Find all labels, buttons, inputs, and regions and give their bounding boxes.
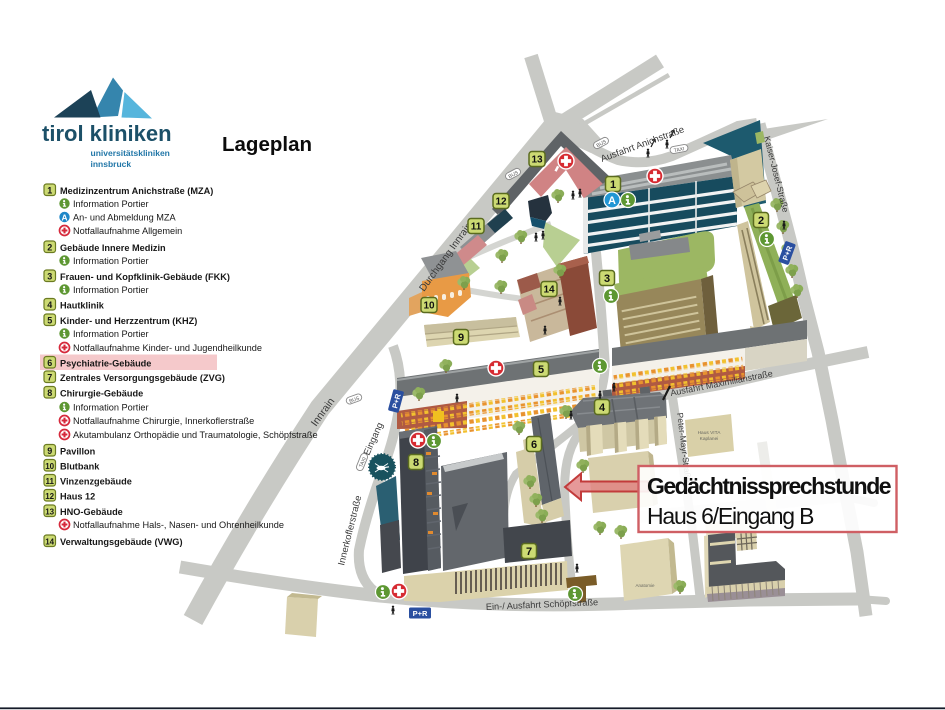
svg-text:9: 9 — [458, 332, 464, 344]
svg-text:Psychiatrie-Gebäude: Psychiatrie-Gebäude — [60, 358, 151, 368]
svg-text:9: 9 — [47, 446, 52, 456]
svg-text:5: 5 — [47, 315, 52, 325]
svg-text:Information Portier: Information Portier — [73, 256, 149, 266]
svg-text:Vinzenzgebäude: Vinzenzgebäude — [60, 476, 132, 486]
svg-text:Haus VITA: Haus VITA — [698, 430, 722, 436]
svg-text:A: A — [608, 195, 616, 207]
svg-text:Anatomie: Anatomie — [635, 583, 655, 588]
svg-text:11: 11 — [471, 222, 482, 233]
svg-text:4: 4 — [47, 300, 52, 310]
svg-text:13: 13 — [531, 155, 543, 166]
svg-text:Gebäude Innere Medizin: Gebäude Innere Medizin — [60, 243, 166, 253]
svg-text:An- und Abmeldung MZA: An- und Abmeldung MZA — [73, 213, 177, 223]
svg-text:Chirurgie-Gebäude: Chirurgie-Gebäude — [60, 388, 143, 398]
svg-text:10: 10 — [423, 301, 435, 312]
svg-text:13: 13 — [45, 507, 54, 516]
svg-text:1: 1 — [610, 179, 616, 191]
svg-text:Information Portier: Information Portier — [73, 329, 149, 339]
svg-text:4: 4 — [599, 402, 606, 414]
svg-text:Frauen- und Kopfklinik-Gebäude: Frauen- und Kopfklinik-Gebäude (FKK) — [60, 272, 230, 282]
svg-text:3: 3 — [604, 273, 610, 285]
svg-text:Akutambulanz Orthopädie und Tr: Akutambulanz Orthopädie und Traumatologi… — [73, 430, 318, 440]
svg-text:HNO-Gebäude: HNO-Gebäude — [60, 507, 123, 517]
svg-text:Notfallaufnahme Hals-, Nasen-: Notfallaufnahme Hals-, Nasen- und Ohrenh… — [73, 520, 284, 530]
svg-text:Medizinzentrum Anichstraße (MZ: Medizinzentrum Anichstraße (MZA) — [60, 186, 213, 196]
svg-text:Kinder- und Herzzentrum (KHZ): Kinder- und Herzzentrum (KHZ) — [60, 316, 197, 326]
svg-text:Gedächtnissprechstunde: Gedächtnissprechstunde — [647, 473, 891, 499]
svg-text:11: 11 — [45, 477, 54, 486]
svg-text:5: 5 — [538, 364, 544, 376]
svg-text:Notfallaufnahme Allgemein: Notfallaufnahme Allgemein — [73, 226, 182, 236]
svg-text:7: 7 — [526, 546, 532, 558]
svg-text:2: 2 — [47, 242, 52, 252]
svg-text:innsbruck: innsbruck — [91, 159, 132, 169]
svg-text:P+R: P+R — [413, 609, 428, 618]
svg-text:Verwaltungsgebäude (VWG): Verwaltungsgebäude (VWG) — [60, 537, 183, 547]
svg-text:Kaplanei: Kaplanei — [700, 436, 719, 442]
svg-text:7: 7 — [47, 372, 52, 382]
svg-text:6: 6 — [531, 439, 537, 451]
svg-text:Blutbank: Blutbank — [60, 461, 100, 471]
svg-text:tirol kliniken: tirol kliniken — [42, 121, 172, 146]
svg-text:Notfallaufnahme Chirurgie, Inn: Notfallaufnahme Chirurgie, Innerkoflerst… — [73, 416, 254, 426]
svg-text:universitätskliniken: universitätskliniken — [91, 148, 170, 158]
svg-text:3: 3 — [47, 271, 52, 281]
svg-text:14: 14 — [543, 285, 555, 296]
svg-text:Haus 12: Haus 12 — [60, 491, 95, 501]
svg-text:Haus 6/Eingang B: Haus 6/Eingang B — [647, 503, 814, 529]
svg-text:Hautklinik: Hautklinik — [60, 300, 105, 310]
svg-text:Zentrales Versorgungsgebäude (: Zentrales Versorgungsgebäude (ZVG) — [60, 373, 225, 383]
svg-text:Lageplan: Lageplan — [222, 133, 312, 156]
svg-text:6: 6 — [47, 358, 52, 368]
svg-text:10: 10 — [45, 462, 54, 471]
svg-text:Information Portier: Information Portier — [73, 403, 149, 413]
svg-text:14: 14 — [45, 537, 54, 546]
svg-text:Information Portier: Information Portier — [73, 285, 149, 295]
svg-text:8: 8 — [47, 388, 52, 398]
svg-text:12: 12 — [495, 197, 507, 208]
svg-text:Information Portier: Information Portier — [73, 199, 149, 209]
svg-text:12: 12 — [45, 492, 54, 501]
svg-text:1: 1 — [47, 185, 52, 195]
svg-text:Pavillon: Pavillon — [60, 446, 96, 456]
svg-text:8: 8 — [413, 457, 419, 469]
svg-text:2: 2 — [758, 215, 764, 227]
svg-text:Notfallaufnahme Kinder- und Ju: Notfallaufnahme Kinder- und Jugendheilku… — [73, 343, 262, 353]
